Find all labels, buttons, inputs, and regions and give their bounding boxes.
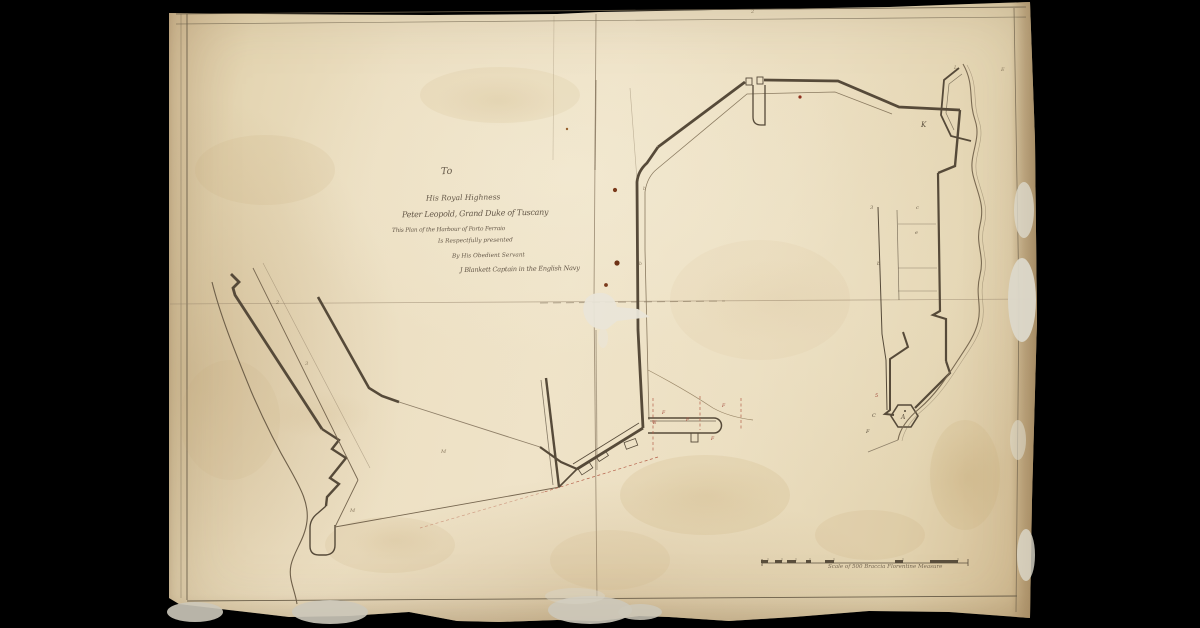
map-sheet [169, 0, 1037, 628]
paper-texture [169, 0, 1037, 628]
dedication-line: His Royal Highness [426, 192, 501, 202]
bottom-deckle-edge [169, 594, 1037, 628]
scanned-map-page: K A 3 c e b 5 C F E F F F F M M 2 3 L E … [0, 0, 1200, 628]
scale-caption: Scale of 500 Braccia Florentine Measure [828, 564, 942, 570]
right-deckle-edge [1011, 0, 1037, 628]
dedication-line: By His Obedient Servant [452, 252, 525, 259]
dedication-line: To [441, 166, 453, 178]
